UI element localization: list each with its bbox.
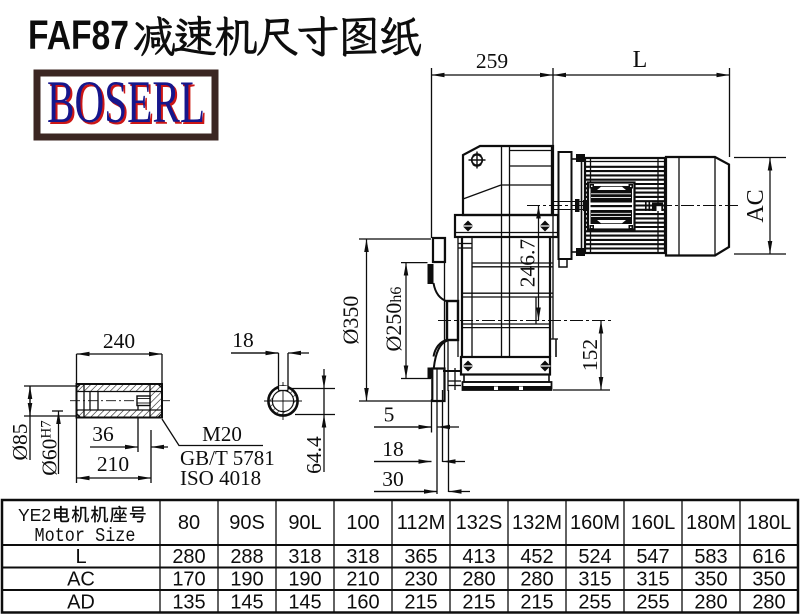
svg-text:AC: AC xyxy=(67,569,95,591)
svg-text:160L: 160L xyxy=(631,512,676,534)
svg-text:BOSERL: BOSERL xyxy=(47,69,205,135)
svg-text:90L: 90L xyxy=(288,512,321,534)
svg-text:280: 280 xyxy=(172,546,205,568)
svg-text:L: L xyxy=(75,546,86,568)
svg-text:616: 616 xyxy=(752,546,785,568)
svg-text:Motor Size: Motor Size xyxy=(35,525,136,547)
svg-text:246.7: 246.7 xyxy=(516,239,540,288)
svg-text:AD: AD xyxy=(67,592,95,614)
svg-text:210: 210 xyxy=(97,452,129,476)
svg-text:152: 152 xyxy=(578,339,602,371)
svg-text:240: 240 xyxy=(103,329,135,353)
svg-text:315: 315 xyxy=(578,569,611,591)
svg-text:210: 210 xyxy=(346,569,379,591)
svg-text:350: 350 xyxy=(694,569,727,591)
svg-text:315: 315 xyxy=(636,569,669,591)
svg-text:170: 170 xyxy=(172,569,205,591)
svg-text:452: 452 xyxy=(520,546,553,568)
svg-text:230: 230 xyxy=(404,569,437,591)
svg-text:100: 100 xyxy=(346,512,379,534)
svg-text:280: 280 xyxy=(694,592,727,614)
svg-text:160M: 160M xyxy=(570,512,620,534)
svg-text:132S: 132S xyxy=(456,512,503,534)
svg-text:280: 280 xyxy=(520,569,553,591)
svg-text:215: 215 xyxy=(520,592,553,614)
svg-text:160: 160 xyxy=(346,592,379,614)
svg-text:288: 288 xyxy=(230,546,263,568)
svg-text:M20: M20 xyxy=(202,422,242,446)
svg-text:L: L xyxy=(633,47,648,73)
svg-text:135: 135 xyxy=(172,592,205,614)
svg-text:259: 259 xyxy=(476,49,508,73)
svg-text:280: 280 xyxy=(462,569,495,591)
svg-text:583: 583 xyxy=(694,546,727,568)
svg-text:YE2: YE2 xyxy=(18,505,51,525)
svg-text:215: 215 xyxy=(404,592,437,614)
svg-text:ISO 4018: ISO 4018 xyxy=(180,466,261,490)
svg-text:18: 18 xyxy=(232,328,254,352)
svg-text:280: 280 xyxy=(752,592,785,614)
svg-text:64.4: 64.4 xyxy=(302,436,326,474)
svg-text:255: 255 xyxy=(578,592,611,614)
svg-text:190: 190 xyxy=(230,569,263,591)
svg-text:112M: 112M xyxy=(397,512,446,534)
svg-text:180L: 180L xyxy=(747,512,792,534)
svg-text:255: 255 xyxy=(636,592,669,614)
svg-text:30: 30 xyxy=(382,467,404,491)
svg-text:36: 36 xyxy=(92,422,114,446)
svg-text:318: 318 xyxy=(288,546,321,568)
svg-text:145: 145 xyxy=(230,592,263,614)
svg-text:215: 215 xyxy=(462,592,495,614)
svg-text:FAF87: FAF87 xyxy=(28,12,129,58)
svg-text:180M: 180M xyxy=(686,512,736,534)
svg-text:AC: AC xyxy=(743,189,769,222)
svg-text:18: 18 xyxy=(382,437,404,461)
svg-text:365: 365 xyxy=(404,546,437,568)
svg-text:132M: 132M xyxy=(512,512,562,534)
svg-text:Ø250h6: Ø250h6 xyxy=(381,287,406,352)
svg-text:5: 5 xyxy=(384,403,395,427)
svg-text:90S: 90S xyxy=(229,512,265,534)
svg-text:Ø85: Ø85 xyxy=(8,423,32,460)
svg-text:80: 80 xyxy=(178,512,200,534)
svg-text:145: 145 xyxy=(288,592,321,614)
svg-text:318: 318 xyxy=(346,546,379,568)
svg-text:547: 547 xyxy=(636,546,669,568)
svg-text:413: 413 xyxy=(462,546,495,568)
svg-text:Ø350: Ø350 xyxy=(338,296,363,345)
svg-text:190: 190 xyxy=(288,569,321,591)
svg-text:524: 524 xyxy=(578,546,611,568)
svg-text:350: 350 xyxy=(752,569,785,591)
